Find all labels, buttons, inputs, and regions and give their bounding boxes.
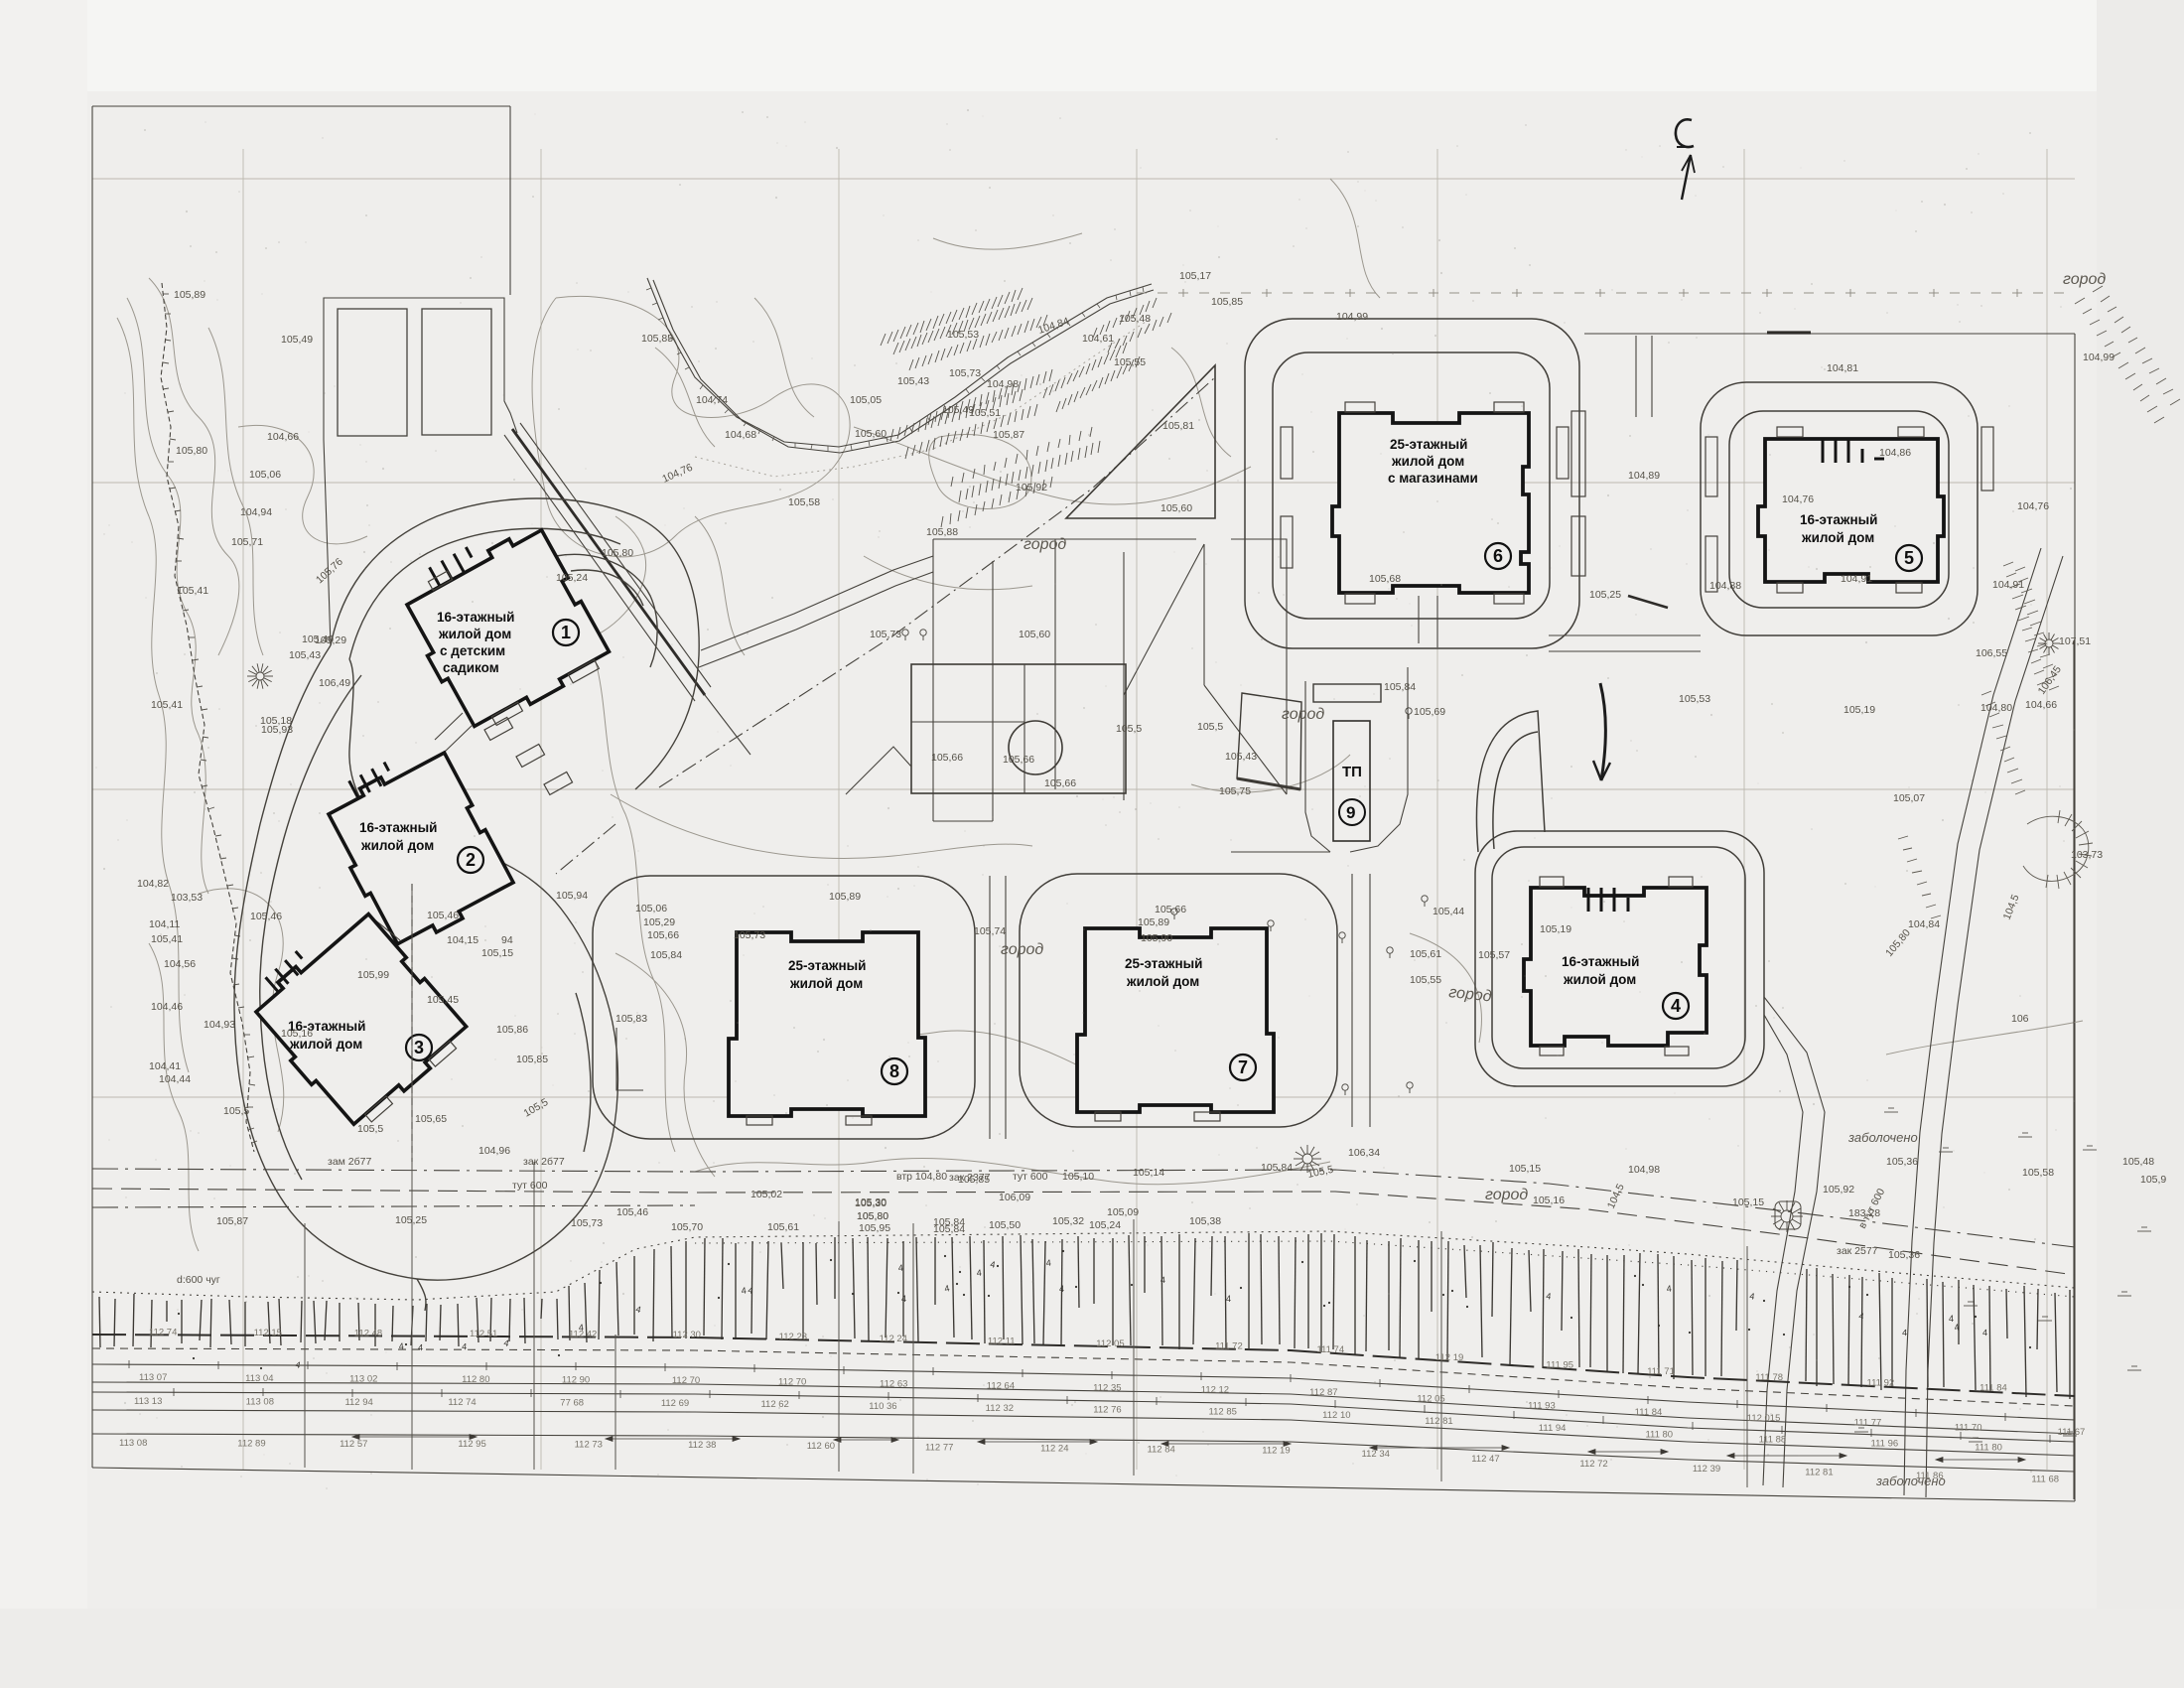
svg-text:4: 4 bbox=[1671, 996, 1681, 1016]
svg-text:105,19: 105,19 bbox=[1843, 704, 1875, 716]
svg-text:112 15: 112 15 bbox=[254, 1328, 282, 1338]
svg-text:город: город bbox=[1001, 941, 1043, 958]
svg-text:105,48: 105,48 bbox=[2122, 1156, 2154, 1168]
svg-text:втр 104,80: втр 104,80 bbox=[896, 1171, 947, 1183]
svg-text:105,53: 105,53 bbox=[947, 329, 979, 341]
svg-text:105,43: 105,43 bbox=[289, 649, 321, 661]
svg-text:105,88: 105,88 bbox=[926, 526, 958, 538]
svg-text:садиком: садиком bbox=[443, 660, 499, 675]
svg-text:112 74: 112 74 bbox=[448, 1397, 476, 1408]
svg-text:105,89: 105,89 bbox=[1138, 916, 1169, 928]
svg-text:105,60: 105,60 bbox=[855, 428, 887, 440]
svg-text:105,80: 105,80 bbox=[857, 1210, 888, 1222]
svg-text:113 08: 113 08 bbox=[119, 1438, 147, 1449]
svg-text:112 85: 112 85 bbox=[1209, 1407, 1237, 1418]
svg-text:104,41: 104,41 bbox=[149, 1060, 181, 1072]
svg-text:105,87: 105,87 bbox=[216, 1215, 248, 1227]
svg-text:105,06: 105,06 bbox=[635, 903, 667, 914]
svg-text:112 89: 112 89 bbox=[237, 1438, 265, 1449]
svg-text:город: город bbox=[1024, 536, 1066, 553]
svg-text:106,49: 106,49 bbox=[319, 677, 350, 689]
svg-text:104,99: 104,99 bbox=[1336, 311, 1368, 323]
svg-text:105,40: 105,40 bbox=[302, 633, 334, 645]
svg-text:105,65: 105,65 bbox=[415, 1113, 447, 1125]
svg-text:111 70: 111 70 bbox=[1955, 1422, 1982, 1433]
svg-text:105,46: 105,46 bbox=[250, 911, 282, 922]
svg-text:105,84: 105,84 bbox=[1384, 681, 1416, 693]
svg-text:112 76: 112 76 bbox=[1093, 1405, 1121, 1416]
svg-text:105,25: 105,25 bbox=[395, 1214, 427, 1226]
svg-text:город: город bbox=[1485, 1187, 1528, 1203]
svg-text:105,06: 105,06 bbox=[249, 469, 281, 481]
svg-text:112 62: 112 62 bbox=[760, 1399, 788, 1410]
svg-text:зак 2377: зак 2377 bbox=[949, 1172, 991, 1184]
svg-text:94: 94 bbox=[501, 934, 513, 946]
svg-text:112 74: 112 74 bbox=[149, 1327, 177, 1337]
svg-text:104,98: 104,98 bbox=[1628, 1164, 1660, 1176]
svg-text:104,61: 104,61 bbox=[1082, 333, 1114, 345]
svg-text:105,43: 105,43 bbox=[897, 375, 929, 387]
svg-text:жилой дом: жилой дом bbox=[1801, 530, 1874, 545]
svg-text:112 19: 112 19 bbox=[1262, 1446, 1290, 1457]
svg-text:112 90: 112 90 bbox=[562, 1374, 590, 1385]
svg-text:112 11: 112 11 bbox=[988, 1336, 1016, 1346]
svg-text:112 80: 112 80 bbox=[462, 1374, 489, 1385]
svg-text:жилой дом: жилой дом bbox=[438, 627, 511, 641]
svg-text:105,5: 105,5 bbox=[1116, 723, 1142, 735]
svg-text:105,02: 105,02 bbox=[751, 1189, 782, 1200]
svg-text:4: 4 bbox=[901, 1294, 906, 1304]
svg-text:112 38: 112 38 bbox=[688, 1440, 716, 1451]
svg-text:4: 4 bbox=[418, 1342, 423, 1352]
svg-text:105,15: 105,15 bbox=[1732, 1196, 1764, 1208]
svg-text:зам 2б77: зам 2б77 bbox=[328, 1156, 371, 1168]
svg-text:105,5: 105,5 bbox=[357, 1123, 383, 1135]
svg-text:104,66: 104,66 bbox=[267, 431, 299, 443]
svg-text:112 24: 112 24 bbox=[880, 1334, 907, 1344]
svg-text:16-этажный: 16-этажный bbox=[359, 820, 437, 835]
svg-text:103,53: 103,53 bbox=[171, 892, 203, 904]
svg-text:112 39: 112 39 bbox=[1693, 1464, 1720, 1475]
svg-text:105,49: 105,49 bbox=[281, 334, 313, 346]
svg-text:105,41: 105,41 bbox=[151, 699, 183, 711]
svg-text:112 05: 112 05 bbox=[1417, 1394, 1444, 1405]
svg-text:4: 4 bbox=[1045, 1258, 1051, 1268]
svg-text:105,81: 105,81 bbox=[1162, 420, 1194, 432]
svg-text:104,81: 104,81 bbox=[1827, 362, 1858, 374]
svg-text:тут 600: тут 600 bbox=[1013, 1171, 1048, 1183]
svg-text:104,93: 104,93 bbox=[204, 1019, 235, 1031]
svg-text:112 51: 112 51 bbox=[470, 1329, 497, 1339]
svg-text:с магазинами: с магазинами bbox=[1388, 471, 1478, 486]
svg-text:112 47: 112 47 bbox=[1471, 1454, 1499, 1465]
svg-text:111 77: 111 77 bbox=[1854, 1418, 1882, 1429]
svg-text:104,99: 104,99 bbox=[2083, 352, 2115, 363]
svg-text:105,50: 105,50 bbox=[989, 1219, 1021, 1231]
svg-text:105,85: 105,85 bbox=[1211, 296, 1243, 308]
svg-text:112 48: 112 48 bbox=[354, 1328, 382, 1338]
svg-text:6: 6 bbox=[1493, 546, 1503, 566]
svg-text:105,5: 105,5 bbox=[223, 1105, 249, 1117]
svg-text:104,91: 104,91 bbox=[1992, 579, 2024, 591]
svg-text:4: 4 bbox=[1902, 1328, 1907, 1337]
svg-text:111 92: 111 92 bbox=[1867, 1377, 1895, 1388]
svg-text:113 07: 113 07 bbox=[139, 1372, 167, 1383]
svg-text:112 94: 112 94 bbox=[344, 1397, 372, 1408]
svg-text:112 19: 112 19 bbox=[1435, 1352, 1463, 1363]
svg-text:112 23: 112 23 bbox=[779, 1332, 807, 1342]
svg-text:111 94: 111 94 bbox=[1539, 1423, 1567, 1434]
svg-text:105,38: 105,38 bbox=[1189, 1215, 1221, 1227]
svg-text:16-этажный: 16-этажный bbox=[1800, 512, 1877, 527]
svg-text:105,70: 105,70 bbox=[671, 1221, 703, 1233]
svg-text:104,86: 104,86 bbox=[1879, 447, 1911, 459]
svg-text:105,73: 105,73 bbox=[949, 367, 981, 379]
svg-text:104,68: 104,68 bbox=[725, 429, 756, 441]
svg-text:112 81: 112 81 bbox=[1425, 1416, 1452, 1427]
svg-text:112 30: 112 30 bbox=[673, 1330, 701, 1340]
svg-text:жилой дом: жилой дом bbox=[1563, 972, 1636, 987]
svg-text:105,66: 105,66 bbox=[1003, 754, 1034, 766]
svg-text:112 57: 112 57 bbox=[340, 1439, 367, 1450]
svg-text:105,29: 105,29 bbox=[643, 916, 675, 928]
svg-text:105,93: 105,93 bbox=[261, 724, 293, 736]
svg-text:зак 2б77: зак 2б77 bbox=[523, 1156, 565, 1168]
svg-text:d:600 чуг: d:600 чуг bbox=[177, 1274, 220, 1286]
svg-text:105,66: 105,66 bbox=[1155, 904, 1186, 915]
svg-text:104,15: 104,15 bbox=[447, 934, 478, 946]
svg-text:106,55: 106,55 bbox=[1976, 647, 2007, 659]
svg-text:жилой дом: жилой дом bbox=[1126, 974, 1199, 989]
svg-text:112 32: 112 32 bbox=[986, 1403, 1014, 1414]
svg-text:5: 5 bbox=[1904, 548, 1914, 568]
svg-text:105,41: 105,41 bbox=[151, 933, 183, 945]
svg-text:заболочено: заболочено bbox=[1847, 1130, 1918, 1145]
svg-text:105,46: 105,46 bbox=[427, 910, 459, 921]
svg-text:104,56: 104,56 bbox=[164, 958, 196, 970]
svg-text:105,53: 105,53 bbox=[1679, 693, 1710, 705]
svg-text:105,32: 105,32 bbox=[1052, 1215, 1084, 1227]
svg-text:105,05: 105,05 bbox=[850, 394, 882, 406]
svg-text:105,71: 105,71 bbox=[231, 536, 263, 548]
svg-text:104,84: 104,84 bbox=[1908, 918, 1940, 930]
svg-text:77 68: 77 68 bbox=[560, 1398, 584, 1409]
svg-text:107,51: 107,51 bbox=[2059, 635, 2091, 647]
svg-text:105,74: 105,74 bbox=[974, 925, 1006, 937]
svg-text:105,85: 105,85 bbox=[516, 1054, 548, 1065]
svg-text:105,30: 105,30 bbox=[855, 1196, 887, 1208]
svg-text:111 86: 111 86 bbox=[1916, 1471, 1944, 1481]
svg-text:111 71: 111 71 bbox=[1647, 1366, 1675, 1377]
svg-text:город: город bbox=[2063, 271, 2106, 288]
svg-text:2: 2 bbox=[466, 850, 476, 870]
svg-text:4: 4 bbox=[1160, 1275, 1165, 1285]
svg-text:жилой дом: жилой дом bbox=[360, 838, 434, 853]
svg-text:104,88: 104,88 bbox=[1709, 580, 1741, 592]
svg-text:4: 4 bbox=[1666, 1284, 1672, 1294]
svg-text:105,46: 105,46 bbox=[616, 1206, 648, 1218]
svg-text:111 84: 111 84 bbox=[1979, 1383, 2007, 1394]
svg-text:111 84: 111 84 bbox=[1635, 1407, 1663, 1418]
svg-text:105,89: 105,89 bbox=[174, 289, 205, 301]
svg-text:105,25: 105,25 bbox=[1589, 589, 1621, 601]
svg-text:105,92: 105,92 bbox=[1016, 482, 1047, 493]
svg-text:111 78: 111 78 bbox=[1755, 1372, 1783, 1383]
svg-text:104,46: 104,46 bbox=[151, 1001, 183, 1013]
svg-text:111 80: 111 80 bbox=[1645, 1429, 1673, 1440]
svg-text:110 36: 110 36 bbox=[869, 1401, 896, 1412]
svg-text:105,9: 105,9 bbox=[2140, 1174, 2166, 1186]
svg-text:112 70: 112 70 bbox=[778, 1377, 806, 1388]
svg-text:112 015: 112 015 bbox=[1747, 1413, 1781, 1424]
svg-text:4: 4 bbox=[1226, 1294, 1231, 1304]
svg-text:105,84: 105,84 bbox=[933, 1216, 965, 1228]
svg-text:105,84: 105,84 bbox=[1261, 1162, 1293, 1174]
svg-text:105,17: 105,17 bbox=[1179, 270, 1211, 282]
svg-text:105,68: 105,68 bbox=[1369, 573, 1401, 585]
svg-text:112 05: 112 05 bbox=[1096, 1338, 1124, 1349]
svg-text:16-этажный: 16-этажный bbox=[437, 610, 514, 625]
svg-text:105,36: 105,36 bbox=[1888, 1249, 1920, 1261]
svg-text:105,75: 105,75 bbox=[1219, 785, 1251, 797]
svg-text:с детским: с детским bbox=[440, 643, 505, 658]
svg-text:104,76: 104,76 bbox=[1782, 493, 1814, 505]
svg-text:зак 2577: зак 2577 bbox=[1837, 1245, 1878, 1257]
svg-text:105,45: 105,45 bbox=[427, 994, 459, 1006]
svg-text:105,66: 105,66 bbox=[1044, 777, 1076, 789]
svg-text:25-этажный: 25-этажный bbox=[1125, 956, 1202, 971]
svg-text:104,80: 104,80 bbox=[1980, 702, 2012, 714]
svg-text:105,51: 105,51 bbox=[969, 407, 1001, 419]
svg-text:105,89: 105,89 bbox=[829, 891, 861, 903]
svg-text:111 67: 111 67 bbox=[2058, 1427, 2086, 1438]
svg-text:105,57: 105,57 bbox=[1478, 949, 1510, 961]
svg-text:105,66: 105,66 bbox=[647, 929, 679, 941]
svg-text:105,58: 105,58 bbox=[2022, 1167, 2054, 1179]
svg-text:105,60: 105,60 bbox=[1160, 502, 1192, 514]
svg-text:113 02: 113 02 bbox=[349, 1373, 377, 1384]
svg-text:105,24: 105,24 bbox=[1089, 1219, 1121, 1231]
svg-text:4: 4 bbox=[976, 1268, 982, 1278]
svg-text:104,94: 104,94 bbox=[240, 506, 272, 518]
svg-text:112 63: 112 63 bbox=[880, 1378, 907, 1389]
svg-text:25-этажный: 25-этажный bbox=[788, 958, 866, 973]
svg-text:111 72: 111 72 bbox=[1215, 1340, 1243, 1351]
svg-text:112 64: 112 64 bbox=[987, 1380, 1015, 1391]
svg-text:111 68: 111 68 bbox=[2031, 1475, 2059, 1485]
svg-text:104,44: 104,44 bbox=[159, 1073, 191, 1085]
svg-text:105,94: 105,94 bbox=[556, 890, 588, 902]
svg-text:105,92: 105,92 bbox=[1823, 1184, 1854, 1196]
svg-text:111 80: 111 80 bbox=[1975, 1442, 2002, 1453]
svg-text:112 77: 112 77 bbox=[925, 1442, 953, 1453]
svg-text:104,82: 104,82 bbox=[137, 878, 169, 890]
svg-text:113 08: 113 08 bbox=[246, 1397, 274, 1408]
svg-text:105,69: 105,69 bbox=[1414, 706, 1445, 718]
svg-text:105,86: 105,86 bbox=[496, 1024, 528, 1036]
svg-text:106: 106 bbox=[2011, 1013, 2029, 1025]
svg-text:ТП: ТП bbox=[1342, 764, 1362, 780]
svg-text:104,74: 104,74 bbox=[696, 394, 728, 406]
svg-text:105,95: 105,95 bbox=[859, 1222, 890, 1234]
svg-text:жилой дом: жилой дом bbox=[1391, 454, 1464, 469]
svg-text:104,76: 104,76 bbox=[2017, 500, 2049, 512]
svg-text:104,91: 104,91 bbox=[1841, 573, 1872, 585]
svg-text:112 73: 112 73 bbox=[575, 1440, 603, 1451]
svg-text:8: 8 bbox=[889, 1061, 899, 1081]
svg-text:105,43: 105,43 bbox=[1225, 751, 1257, 763]
svg-text:105,36: 105,36 bbox=[1886, 1156, 1918, 1168]
svg-text:105,55: 105,55 bbox=[1410, 974, 1441, 986]
svg-text:105,84: 105,84 bbox=[650, 949, 682, 961]
svg-text:105,73: 105,73 bbox=[734, 929, 765, 941]
svg-text:105,44: 105,44 bbox=[1433, 906, 1464, 917]
svg-text:105,14: 105,14 bbox=[1133, 1167, 1164, 1179]
svg-text:7: 7 bbox=[1238, 1057, 1248, 1077]
svg-text:111 88: 111 88 bbox=[1759, 1435, 1787, 1446]
svg-text:105,58: 105,58 bbox=[788, 496, 820, 508]
svg-text:4: 4 bbox=[462, 1341, 468, 1351]
svg-text:113 13: 113 13 bbox=[134, 1396, 162, 1407]
svg-text:112 81: 112 81 bbox=[1805, 1468, 1833, 1478]
svg-text:104,66: 104,66 bbox=[2025, 699, 2057, 711]
svg-text:105,55: 105,55 bbox=[1114, 356, 1146, 368]
svg-text:105,61: 105,61 bbox=[767, 1221, 799, 1233]
svg-text:жилой дом: жилой дом bbox=[789, 976, 863, 991]
svg-text:25-этажный: 25-этажный bbox=[1390, 437, 1467, 452]
svg-text:104,89: 104,89 bbox=[1628, 470, 1660, 482]
svg-text:4: 4 bbox=[897, 1263, 903, 1273]
svg-text:4: 4 bbox=[741, 1286, 747, 1296]
svg-text:105,60: 105,60 bbox=[1019, 629, 1050, 640]
svg-text:105,85: 105,85 bbox=[641, 333, 673, 345]
svg-text:3: 3 bbox=[414, 1038, 424, 1057]
svg-text:106,34: 106,34 bbox=[1348, 1147, 1380, 1159]
svg-text:111 96: 111 96 bbox=[1871, 1439, 1899, 1450]
svg-text:105,15: 105,15 bbox=[481, 947, 513, 959]
svg-text:город: город bbox=[1282, 706, 1324, 723]
svg-text:112 42: 112 42 bbox=[569, 1329, 597, 1339]
svg-text:1: 1 bbox=[561, 623, 571, 642]
svg-text:105,5: 105,5 bbox=[1197, 721, 1223, 733]
svg-text:105,73: 105,73 bbox=[870, 629, 901, 640]
svg-text:105,19: 105,19 bbox=[1540, 923, 1571, 935]
svg-text:105,73: 105,73 bbox=[571, 1217, 603, 1229]
svg-text:4: 4 bbox=[1059, 1284, 1064, 1294]
svg-text:105,87: 105,87 bbox=[993, 429, 1024, 441]
svg-text:105,15: 105,15 bbox=[1509, 1163, 1541, 1175]
svg-text:111 93: 111 93 bbox=[1528, 1400, 1556, 1411]
svg-text:105,41: 105,41 bbox=[177, 585, 208, 597]
svg-text:105,66: 105,66 bbox=[931, 752, 963, 764]
svg-text:104,11: 104,11 bbox=[149, 918, 180, 930]
svg-text:112 70: 112 70 bbox=[672, 1375, 700, 1386]
svg-text:105,24: 105,24 bbox=[556, 572, 588, 584]
svg-text:105,16: 105,16 bbox=[281, 1028, 313, 1040]
svg-text:112 34: 112 34 bbox=[1362, 1449, 1390, 1460]
svg-text:105,09: 105,09 bbox=[1107, 1206, 1139, 1218]
svg-text:112 12: 112 12 bbox=[1201, 1384, 1229, 1395]
svg-text:105,07: 105,07 bbox=[1893, 792, 1925, 804]
svg-text:105,80: 105,80 bbox=[602, 547, 633, 559]
svg-text:112 84: 112 84 bbox=[1147, 1445, 1174, 1456]
svg-text:105,80: 105,80 bbox=[176, 445, 207, 457]
svg-text:112 24: 112 24 bbox=[1040, 1443, 1068, 1454]
svg-text:112 95: 112 95 bbox=[458, 1439, 485, 1450]
svg-text:9: 9 bbox=[1346, 803, 1355, 822]
svg-text:105,16: 105,16 bbox=[1533, 1195, 1565, 1206]
svg-text:105,48: 105,48 bbox=[1119, 313, 1151, 325]
svg-text:104,98: 104,98 bbox=[987, 378, 1019, 390]
svg-text:112 35: 112 35 bbox=[1093, 1382, 1121, 1393]
svg-text:105,10: 105,10 bbox=[1062, 1171, 1094, 1183]
svg-text:112 60: 112 60 bbox=[807, 1441, 835, 1452]
svg-text:105,99: 105,99 bbox=[357, 969, 389, 981]
svg-text:112 72: 112 72 bbox=[1579, 1459, 1607, 1470]
svg-text:104,96: 104,96 bbox=[478, 1145, 510, 1157]
svg-text:113 04: 113 04 bbox=[245, 1373, 273, 1384]
svg-text:16-этажный: 16-этажный bbox=[1562, 954, 1639, 969]
svg-text:112 87: 112 87 bbox=[1309, 1387, 1337, 1398]
svg-text:тут 600: тут 600 bbox=[512, 1180, 548, 1192]
svg-text:103,73: 103,73 bbox=[2071, 849, 2103, 861]
svg-text:105,61: 105,61 bbox=[1410, 948, 1441, 960]
svg-text:112 69: 112 69 bbox=[661, 1398, 689, 1409]
svg-text:4: 4 bbox=[1982, 1328, 1987, 1337]
svg-text:112 10: 112 10 bbox=[1322, 1410, 1350, 1421]
svg-text:111 74: 111 74 bbox=[1316, 1344, 1344, 1355]
svg-text:105,83: 105,83 bbox=[615, 1013, 647, 1025]
svg-text:111 95: 111 95 bbox=[1546, 1359, 1573, 1370]
svg-text:106,09: 106,09 bbox=[999, 1192, 1030, 1203]
svg-text:105,90: 105,90 bbox=[1141, 932, 1172, 944]
